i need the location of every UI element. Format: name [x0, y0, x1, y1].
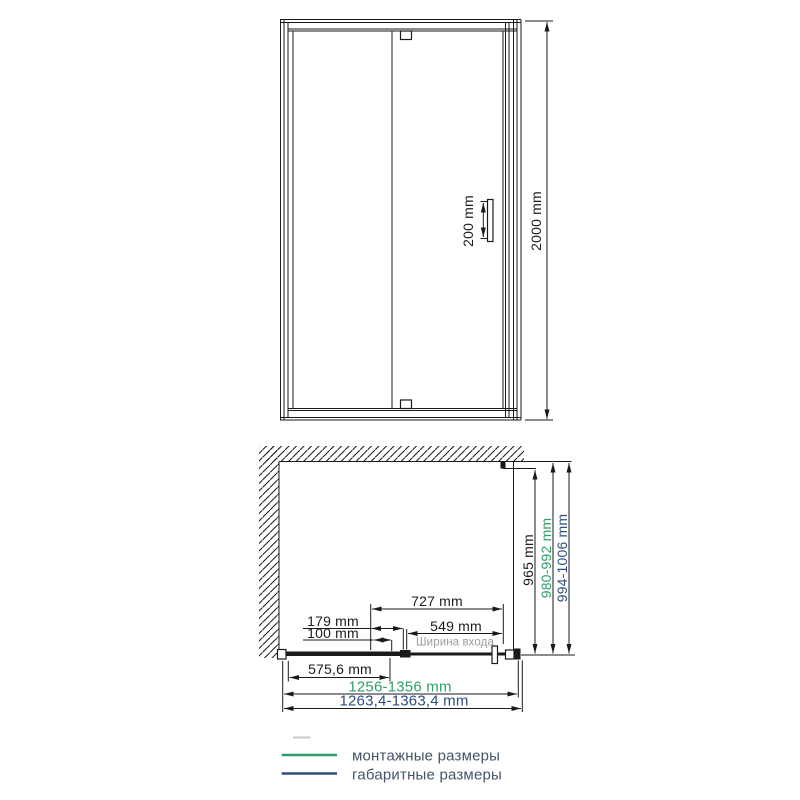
- door-panel-plan: [411, 653, 506, 656]
- dim-575-label: 575,6 mm: [308, 662, 372, 676]
- overall-height-dim-label: 2000 mm: [529, 191, 543, 251]
- entrance-width-label: Ширина входа: [416, 637, 494, 649]
- fixed-panel-plan: [286, 652, 400, 657]
- shower-door-dimension-diagram: 200 mm 2000 mm 727 mm 179 mm 100 mm 549 …: [0, 0, 800, 800]
- side-panel-plan: [501, 462, 514, 655]
- dim-100-label: 100 mm: [307, 626, 359, 640]
- handle-dimension: [481, 202, 489, 239]
- legend-overall-label: габаритные размеры: [352, 767, 502, 782]
- door-handle-front: [488, 200, 494, 242]
- wall-hatch-top: [266, 446, 524, 462]
- wall-hatch-left: [259, 446, 279, 658]
- right-wall-profile-plan: [506, 650, 515, 659]
- overall-depth-dim-label: 994-1006 mm: [555, 514, 569, 603]
- pivot-connector-plan: [400, 650, 411, 658]
- door-handle-plan: [492, 646, 498, 664]
- bottom-pivot-block: [401, 400, 412, 409]
- dim-727-label: 727 mm: [411, 594, 463, 608]
- glass-depth-dim-label: 965 mm: [521, 534, 535, 586]
- legend-mounting-label: монтажные размеры: [352, 749, 500, 764]
- left-wall-profile-plan: [278, 650, 287, 660]
- top-pivot-block: [401, 31, 412, 40]
- dim-549-label: 549 mm: [430, 619, 482, 633]
- handle-length-dim-label: 200 mm: [461, 195, 475, 247]
- front-elevation-drawing: [280, 20, 553, 421]
- mounting-depth-dim-label: 980-992 mm: [539, 518, 553, 599]
- legend-swatches: [282, 738, 337, 774]
- overall-width-dim-label: 1263,4-1363,4 mm: [339, 694, 468, 709]
- right-corner-block-plan: [514, 649, 521, 660]
